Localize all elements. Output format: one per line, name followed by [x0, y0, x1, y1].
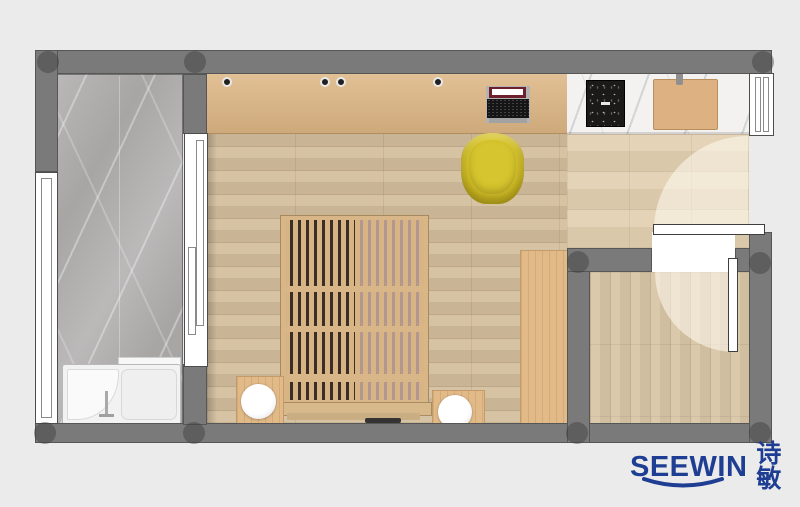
desk-chair-seat [469, 140, 516, 194]
structural-column [183, 422, 205, 444]
bed-cross-rail [283, 286, 426, 292]
kitchen-counter-shadow [567, 132, 749, 135]
bedside-lamp-left [241, 384, 276, 419]
interior-door-leaf [728, 258, 738, 352]
interior-door-opening [652, 232, 735, 272]
cabinet-knob-icon [433, 77, 443, 87]
structural-column [749, 252, 771, 274]
cabinet-knob-icon [222, 77, 232, 87]
laptop-screen-glow [492, 89, 523, 95]
bathtub-seat [67, 369, 119, 420]
bed-cross-rail [283, 326, 426, 332]
laptop-keyboard [487, 99, 529, 118]
side-cabinet [520, 250, 569, 427]
logo-swoosh-icon [640, 477, 726, 489]
floor-plan-canvas: SEEWIN 诗敏 [0, 0, 800, 507]
laptop-tray [489, 118, 527, 123]
structural-column [566, 422, 588, 444]
walk-in-bathtub [62, 364, 181, 425]
wall-top [35, 50, 772, 74]
right-window-pane [763, 77, 769, 132]
sliding-door-panel [196, 140, 204, 326]
bed-slats-left [285, 220, 355, 400]
cabinet-knob-icon [320, 77, 330, 87]
left-window-pane [41, 178, 52, 418]
cooktop [586, 80, 625, 127]
balcony-sliding-door [184, 133, 208, 367]
bed-slats-right [355, 220, 424, 400]
left-window [35, 172, 58, 424]
brand-logo: SEEWIN 诗敏 [630, 450, 800, 484]
structural-column [37, 51, 59, 73]
wall-bottom [35, 423, 772, 443]
slatted-platform-bed [280, 215, 429, 414]
wall-room-divider [567, 248, 590, 443]
bed-cross-rail [283, 374, 426, 382]
wall-balcony-divider-lower [183, 364, 207, 425]
cutting-board [653, 79, 718, 130]
cabinet-knob-icon [336, 77, 346, 87]
cutting-board-knob-icon [676, 73, 683, 85]
structural-column [567, 251, 589, 273]
right-window-pane [755, 77, 761, 132]
entry-door-leaf [653, 224, 765, 235]
sliding-door-panel [188, 247, 196, 335]
structural-column [752, 51, 774, 73]
right-window [749, 73, 774, 136]
brand-logo-cjk: 诗敏 [756, 442, 800, 492]
structural-column [34, 422, 56, 444]
desk-chair [461, 133, 524, 204]
faucet-handle-icon [99, 414, 114, 417]
balcony-tile-seam [119, 76, 120, 362]
laptop [486, 86, 530, 123]
structural-column [184, 51, 206, 73]
bathtub-basin [121, 369, 177, 420]
cooktop-burner-mark [601, 102, 610, 105]
wall-balcony-divider-upper [183, 74, 207, 134]
